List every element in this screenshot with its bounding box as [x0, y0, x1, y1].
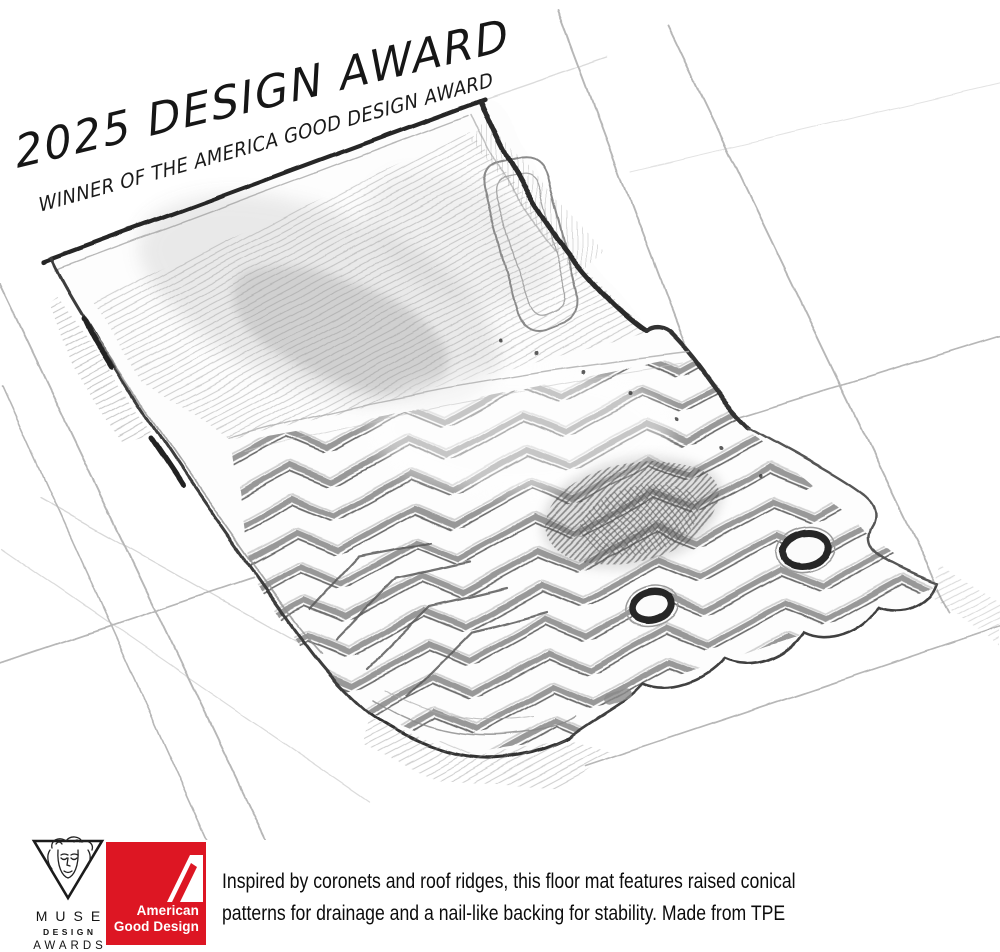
caption-line-2: patterns for drainage and a nail-like ba…	[222, 898, 796, 930]
muse-face-icon	[20, 836, 116, 902]
product-image: 2025 DESIGN AWARD WINNER OF THE AMERICA …	[0, 0, 1000, 952]
muse-wordmark: MUSE	[20, 908, 116, 924]
muse-awards-label: AWARDS	[20, 940, 116, 952]
american-good-design-logo: American Good Design	[106, 842, 206, 945]
agd-wordmark: American Good Design	[114, 903, 199, 935]
agd-line1: American	[114, 903, 199, 919]
muse-design-awards-logo: MUSE DESIGN AWARDS	[20, 836, 116, 952]
agd-line2: Good Design	[114, 919, 199, 935]
caption-line-1: Inspired by coronets and roof ridges, th…	[222, 866, 796, 898]
mat-drawing	[44, 99, 1000, 788]
product-caption: Inspired by coronets and roof ridges, th…	[222, 866, 796, 929]
muse-design-label: DESIGN	[20, 927, 116, 937]
